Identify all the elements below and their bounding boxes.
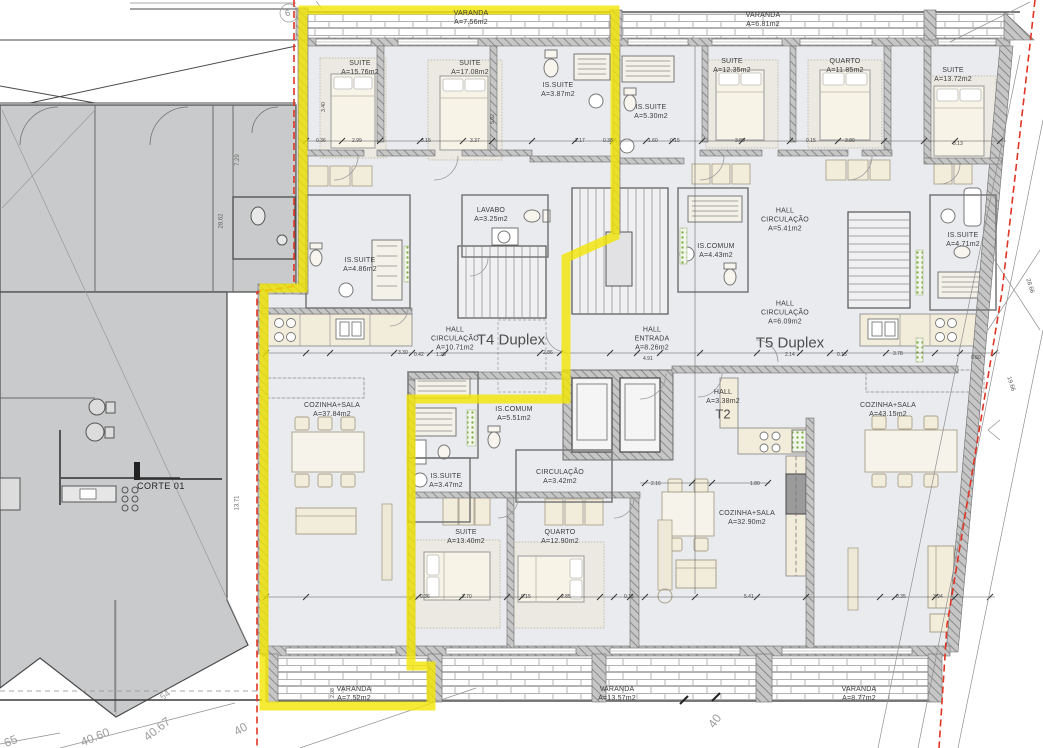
elevator-icon bbox=[563, 370, 673, 460]
appliance-icon bbox=[792, 430, 808, 452]
floor-plan-drawing bbox=[0, 0, 1043, 748]
floor-plan-screenshot: CORTE 01 VARANDA A=7.56m2VARANDA A=6.81m… bbox=[0, 0, 1043, 748]
neighbor-building bbox=[0, 9, 296, 717]
